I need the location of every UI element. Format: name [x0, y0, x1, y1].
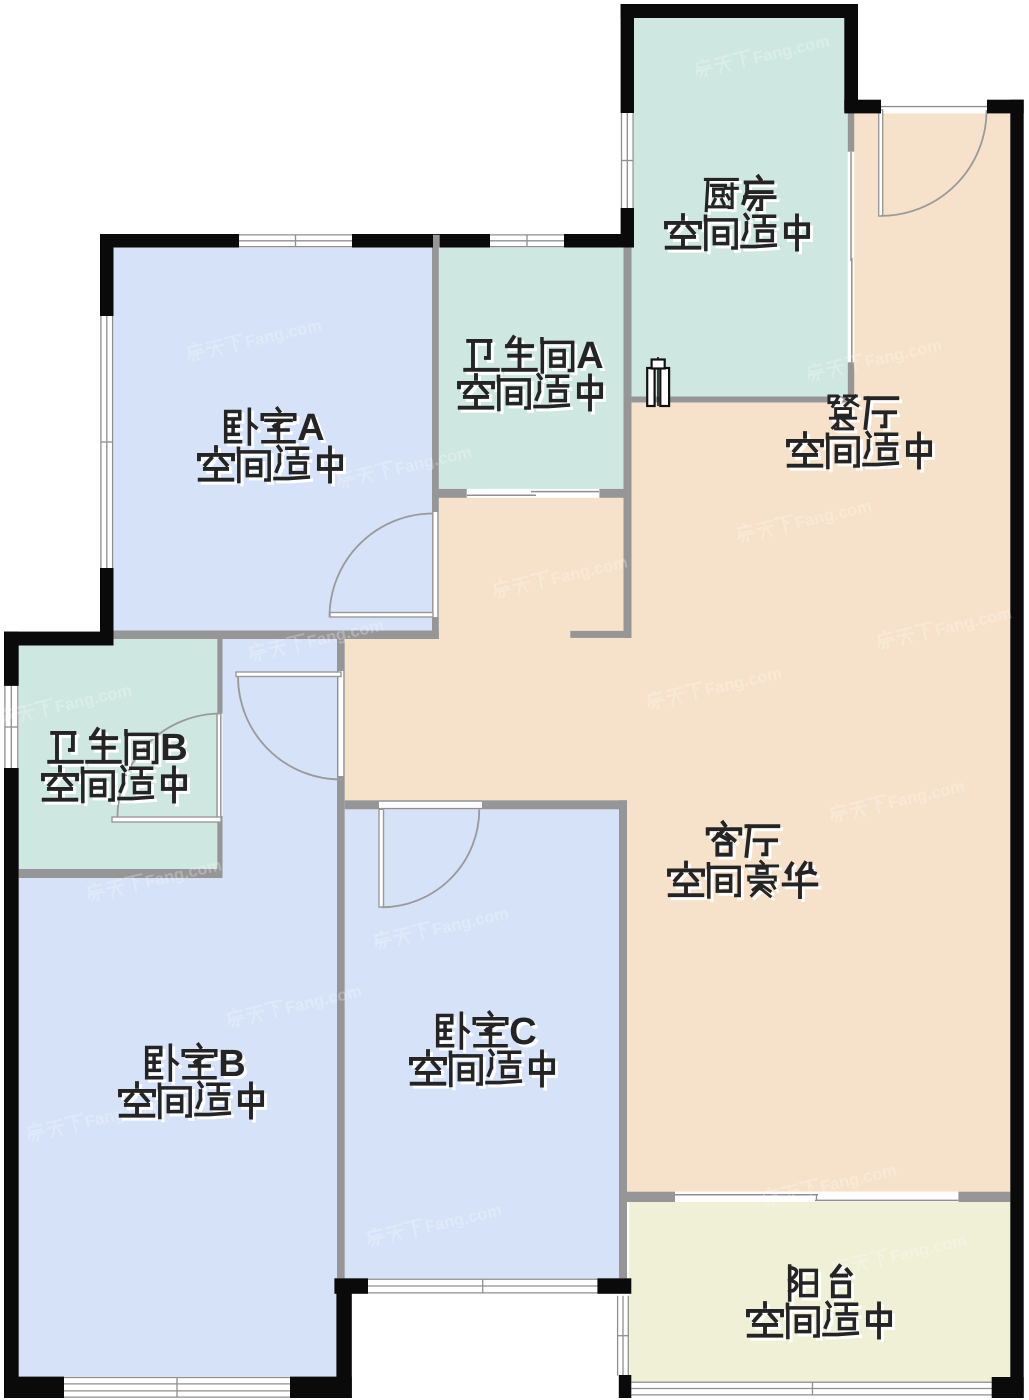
svg-text:A: A — [576, 335, 603, 377]
svg-text:A: A — [297, 407, 324, 449]
svg-text:B: B — [160, 727, 187, 769]
svg-text:B: B — [218, 1043, 245, 1085]
svg-text:C: C — [509, 1011, 536, 1053]
